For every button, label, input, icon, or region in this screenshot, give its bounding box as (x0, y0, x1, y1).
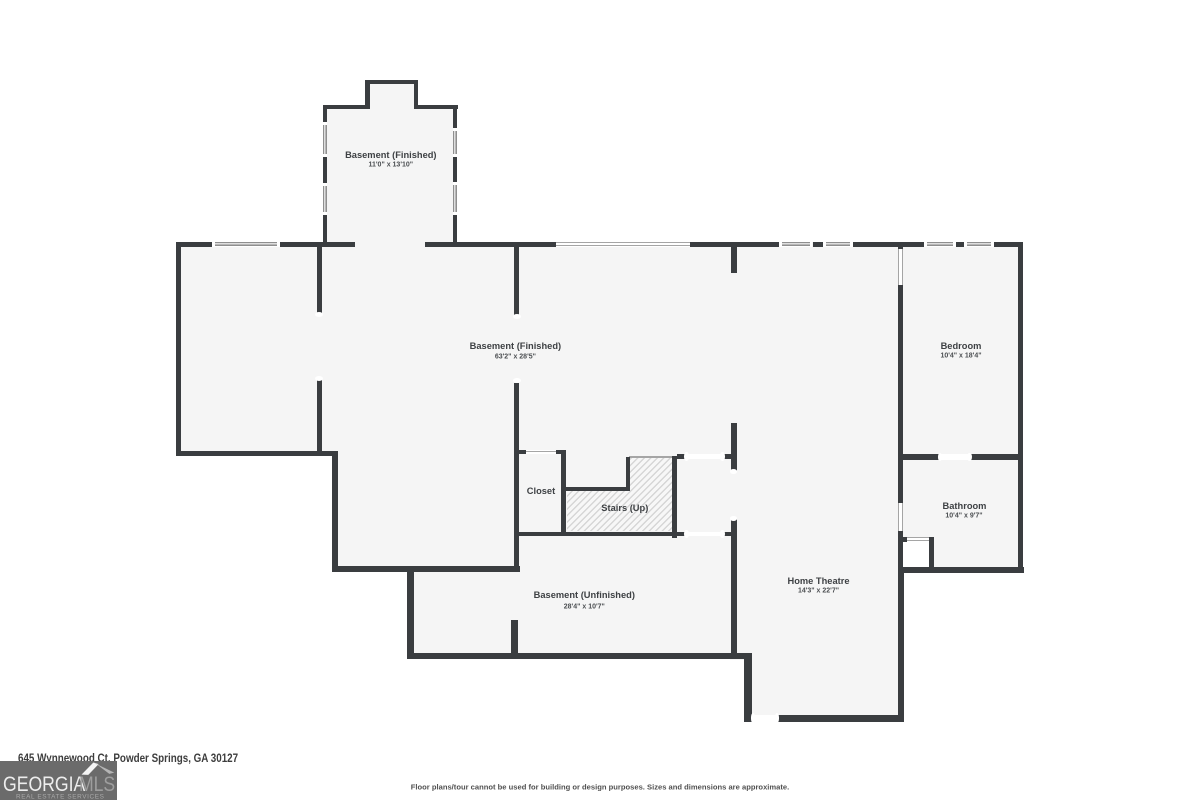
svg-text:REAL ESTATE SERVICES: REAL ESTATE SERVICES (16, 793, 105, 800)
